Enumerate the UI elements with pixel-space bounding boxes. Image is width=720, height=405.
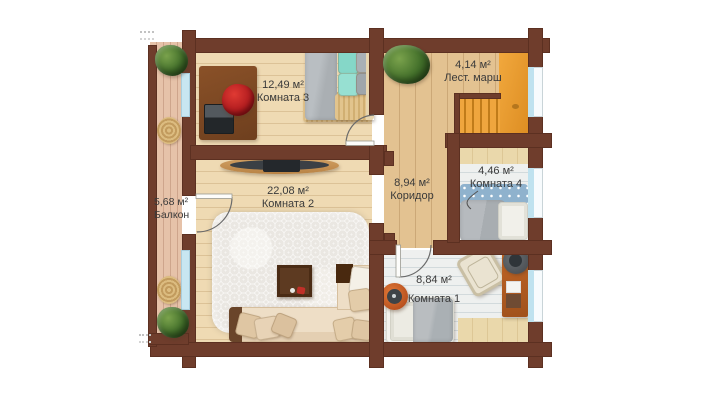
room-area: 12,49 м² [233, 79, 333, 92]
room-label-room1: 8,84 м² Комната 1 [382, 271, 486, 309]
room-name: Комната 3 [233, 92, 333, 105]
room-name: Коридор [362, 190, 462, 203]
dimension-mark [139, 334, 151, 343]
door-leaf-room3 [346, 141, 374, 146]
room-area: 8,84 м² [382, 271, 486, 290]
room-area: 22,08 м² [238, 185, 338, 198]
dimension-mark [140, 31, 154, 40]
room-name: Лест. марш [423, 72, 523, 85]
room-label-stairs: 4,14 м² Лест. марш [423, 59, 523, 85]
room-name: Комната 1 [382, 290, 486, 309]
room-name: Комната 2 [238, 198, 338, 211]
floor-plan: 12,49 м² Комната 3 4,14 м² Лест. марш 8,… [0, 0, 720, 405]
room-area: 4,46 м² [446, 165, 546, 178]
room-area: 5,68 м² [154, 196, 200, 209]
room-label-room2: 22,08 м² Комната 2 [238, 185, 338, 211]
room-label-room3: 12,49 м² Комната 3 [233, 79, 333, 105]
door-swing-overlay [0, 0, 720, 405]
label-leader-room4 [467, 191, 478, 209]
room-label-room4: 4,46 м² Комната 4 [446, 165, 546, 191]
room-area: 4,14 м² [423, 59, 523, 72]
room-name: Комната 4 [446, 178, 546, 191]
room-label-balcony: 5,68 м² Балкон [154, 196, 200, 221]
room-name: Балкон [154, 209, 200, 222]
door-leaf-balcony [196, 194, 232, 199]
